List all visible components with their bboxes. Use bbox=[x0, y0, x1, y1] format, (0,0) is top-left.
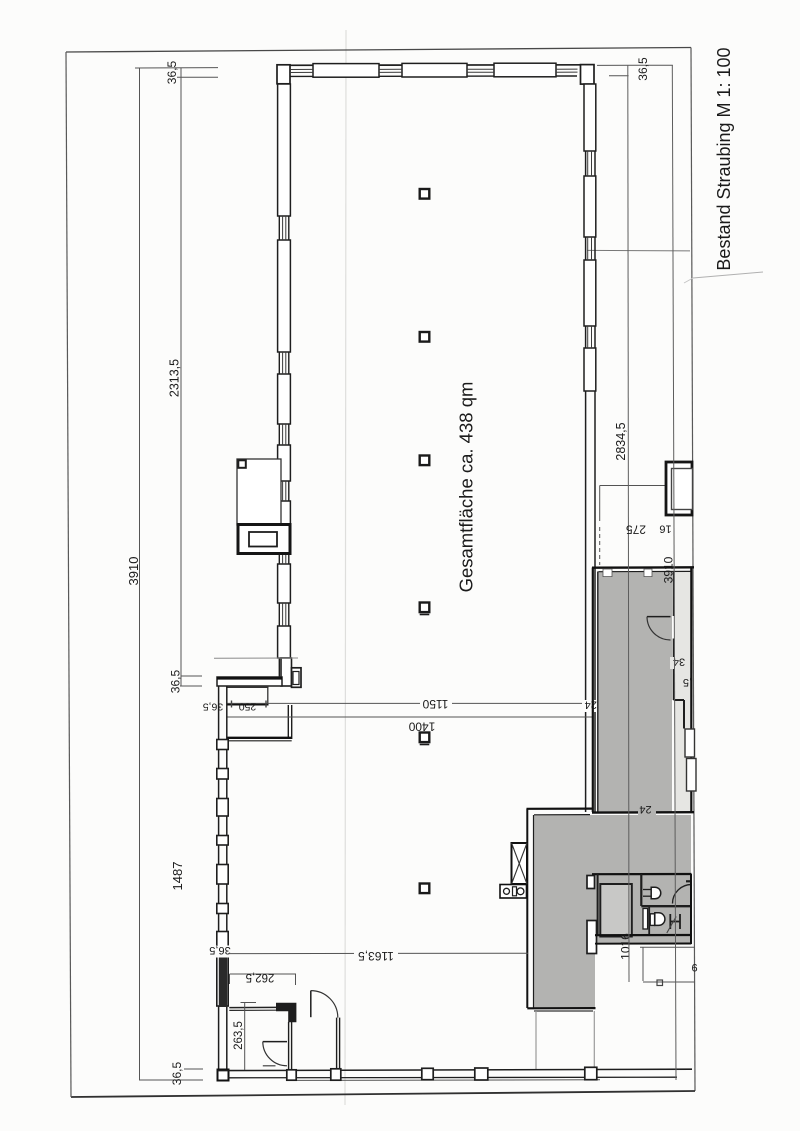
svg-text:Bestand Straubing M 1: 100: Bestand Straubing M 1: 100 bbox=[714, 47, 734, 270]
svg-text:1163,5: 1163,5 bbox=[358, 949, 394, 963]
svg-text:24: 24 bbox=[585, 698, 597, 710]
svg-text:36,5: 36,5 bbox=[203, 701, 224, 713]
svg-text:1487: 1487 bbox=[170, 862, 185, 891]
svg-text:1150: 1150 bbox=[422, 697, 448, 711]
svg-text:36,5: 36,5 bbox=[170, 1061, 184, 1085]
svg-text:275: 275 bbox=[626, 523, 646, 537]
svg-text:,5: ,5 bbox=[683, 676, 692, 688]
svg-text:250: 250 bbox=[239, 701, 257, 713]
svg-text:36,5: 36,5 bbox=[636, 57, 650, 81]
svg-text:36,5: 36,5 bbox=[169, 669, 183, 693]
svg-text:36,5: 36,5 bbox=[165, 60, 179, 84]
svg-text:2834,5: 2834,5 bbox=[614, 422, 628, 460]
svg-text:9: 9 bbox=[691, 961, 697, 973]
svg-text:3910: 3910 bbox=[662, 556, 676, 583]
svg-text:24: 24 bbox=[639, 803, 651, 815]
svg-text:263,5: 263,5 bbox=[233, 1021, 245, 1050]
svg-text:16: 16 bbox=[659, 523, 671, 535]
svg-text:2313,5: 2313,5 bbox=[168, 359, 182, 397]
svg-text:Gesamtfläche ca. 438 qm: Gesamtfläche ca. 438 qm bbox=[456, 382, 477, 593]
svg-text:1016: 1016 bbox=[619, 933, 633, 960]
svg-text:262,5: 262,5 bbox=[246, 971, 275, 983]
svg-text:1400: 1400 bbox=[408, 719, 435, 733]
svg-text:36,5: 36,5 bbox=[209, 944, 230, 956]
svg-text:3910: 3910 bbox=[126, 557, 141, 586]
